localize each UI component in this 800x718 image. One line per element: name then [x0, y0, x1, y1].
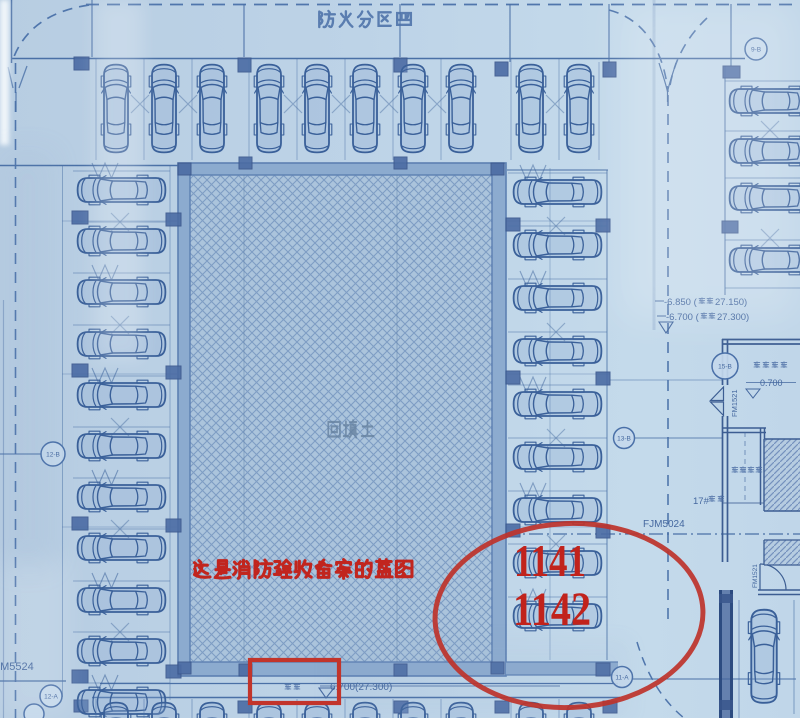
- svg-text:FJM5024: FJM5024: [643, 519, 685, 530]
- svg-text:0.700: 0.700: [760, 378, 783, 388]
- svg-text:17#: 17#: [693, 496, 710, 507]
- svg-text:FM1521: FM1521: [752, 564, 759, 588]
- svg-text:FM1521: FM1521: [730, 389, 739, 417]
- svg-text:1141: 1141: [514, 535, 586, 586]
- svg-text:1142: 1142: [513, 583, 591, 636]
- svg-text:13-B: 13-B: [617, 435, 631, 442]
- svg-text:15-B: 15-B: [718, 363, 732, 370]
